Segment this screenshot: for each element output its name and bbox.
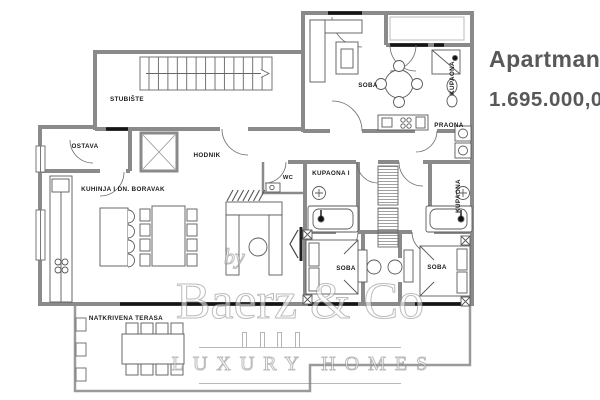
label-hodnik: HODNIK (194, 152, 221, 159)
top-room-sofa (310, 20, 362, 82)
label-ostava: OSTAVA (72, 143, 99, 150)
kitchen-counter (50, 176, 72, 302)
label-wc: WC (283, 175, 294, 181)
elevator (141, 133, 177, 171)
tv (290, 227, 303, 261)
label-kupaona-top: KUPAONA (449, 61, 456, 95)
label-soba-top: SOBA (358, 82, 378, 89)
living-sofa (226, 202, 282, 275)
label-praona: PRAONA (434, 122, 463, 129)
wardrobe-column (378, 166, 398, 247)
label-terasa: NATKRIVENA TERASA (89, 315, 163, 322)
label-kupaona-right: KUPAONA (455, 179, 462, 213)
closet-desks (358, 250, 413, 282)
bed-right (420, 236, 470, 306)
listing-title: Apartman (489, 46, 600, 73)
label-stubiste: STUBIŠTE (110, 94, 144, 103)
terrace-table (122, 323, 184, 375)
top-room-table (376, 61, 423, 108)
staircase (140, 57, 272, 90)
balcony-slab (390, 17, 464, 40)
listing-info: Apartman 1.695.000,00 (489, 46, 600, 112)
kitchenette (378, 115, 428, 130)
wc-fixtures (266, 183, 280, 192)
listing-price: 1.695.000,00 (489, 88, 600, 112)
bathroom-right-fixtures (426, 187, 472, 233)
washer-dryer (455, 126, 471, 158)
label-kuhinja: KUHINJA I DN. BORAVAK (81, 186, 165, 193)
kitchen-island (100, 208, 135, 267)
bathroom1-fixtures (308, 187, 358, 233)
hatch-marks (227, 190, 265, 201)
terrace-planters (76, 318, 86, 381)
dining-table (140, 206, 197, 266)
label-soba-right: SOBA (427, 264, 447, 271)
label-soba-left: SOBA (336, 265, 356, 272)
label-kupaona-1: KUPAONA I (312, 170, 350, 177)
